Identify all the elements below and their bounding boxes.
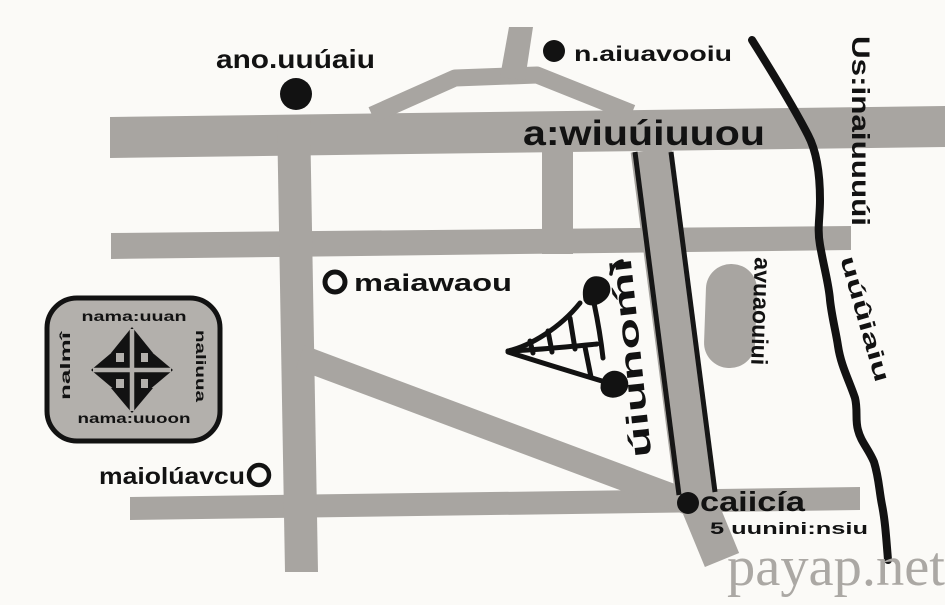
svg-text:maiawaou: maiawaou bbox=[354, 270, 512, 297]
svg-text:nama:uuan: nama:uuan bbox=[82, 308, 187, 324]
svg-text:n.aiuavooiu: n.aiuavooiu bbox=[574, 43, 732, 66]
svg-text:payap.net: payap.net bbox=[727, 536, 945, 598]
svg-text:ano.uuúaiu: ano.uuúaiu bbox=[216, 44, 375, 74]
svg-text:nalmî: nalmî bbox=[57, 330, 73, 400]
svg-text:a:wiuúiuuou: a:wiuúiuuou bbox=[523, 114, 765, 153]
svg-text:caiicía: caiicía bbox=[700, 486, 806, 517]
svg-text:maiolúavcu: maiolúavcu bbox=[99, 463, 245, 489]
svg-text:nama:uuoon: nama:uuoon bbox=[78, 410, 191, 426]
svg-text:avuaouiui: avuaouiui bbox=[746, 257, 776, 366]
svg-text:Us:inaiuuuúi: Us:inaiuuuúi bbox=[846, 36, 874, 226]
svg-text:naliuua: naliuua bbox=[193, 330, 209, 402]
